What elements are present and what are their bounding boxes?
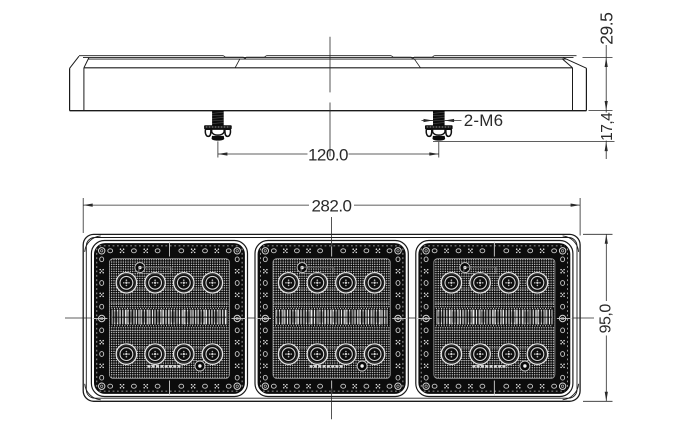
- svg-text:95,0: 95,0: [597, 304, 614, 334]
- svg-text:120.0: 120.0: [308, 146, 348, 165]
- svg-text:17,4: 17,4: [599, 112, 616, 141]
- svg-text:29.5: 29.5: [597, 13, 617, 45]
- svg-text:2-M6: 2-M6: [464, 111, 504, 130]
- svg-text:282.0: 282.0: [311, 197, 351, 216]
